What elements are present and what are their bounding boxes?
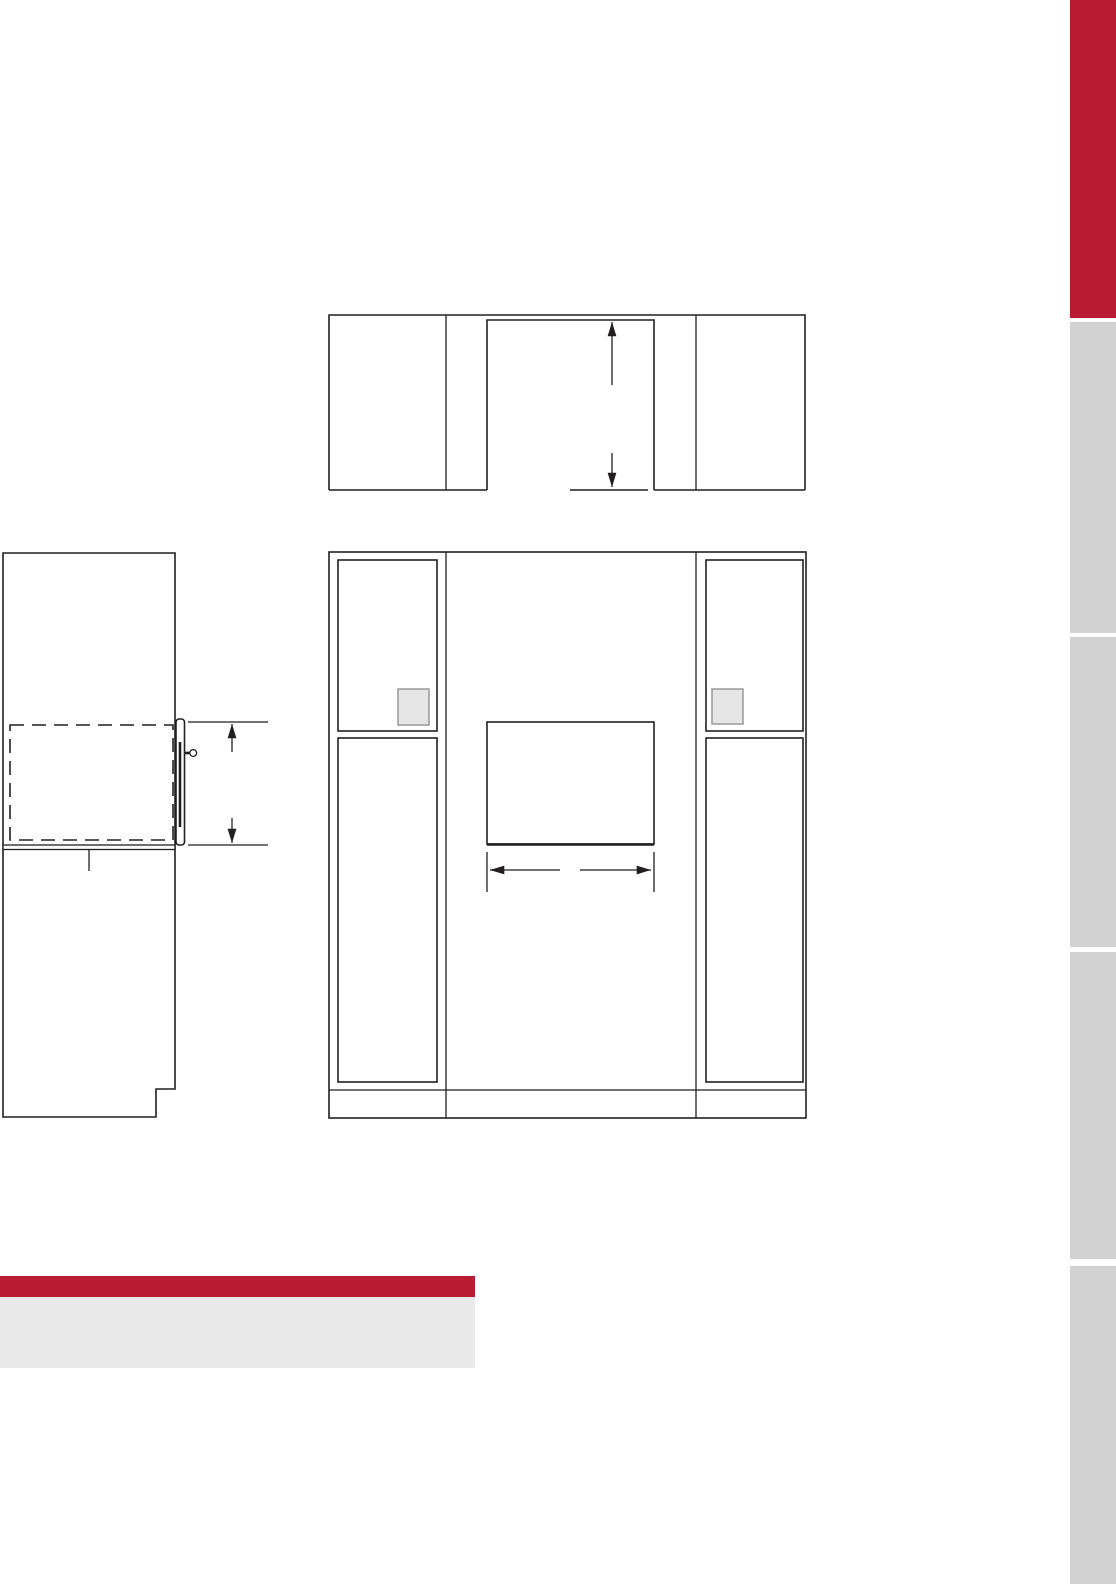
- section-tab-4: [1070, 952, 1116, 1259]
- front-right-outlet-location: [712, 689, 743, 724]
- plan-view-diagram: [329, 315, 805, 490]
- front-cutout-outline: [487, 722, 654, 844]
- side-shelf-line: [3, 845, 175, 850]
- front-left-outlet-location: [398, 689, 429, 725]
- section-tab-3: [1070, 637, 1116, 947]
- plan-opening-outline: [487, 320, 654, 490]
- front-cabinet-outline: [329, 552, 806, 1118]
- front-left-lower-door: [338, 738, 437, 1082]
- side-appliance-dashed-outline: [10, 725, 173, 840]
- side-handle-knob-icon: [190, 750, 197, 757]
- side-view-diagram: [3, 553, 268, 1117]
- plan-enclosure-outline: [329, 315, 805, 490]
- side-cabinet-outline: [3, 553, 175, 1117]
- front-right-lower-door: [706, 738, 803, 1082]
- section-tab-2: [1070, 322, 1116, 633]
- section-tab-5: [1070, 1266, 1116, 1584]
- spec-sheet-page: [0, 0, 1116, 1584]
- front-view-diagram: [329, 552, 806, 1118]
- footer-note-block: [0, 1297, 475, 1368]
- footer-heading-bar: [0, 1276, 475, 1297]
- section-tab-active: [1070, 0, 1116, 318]
